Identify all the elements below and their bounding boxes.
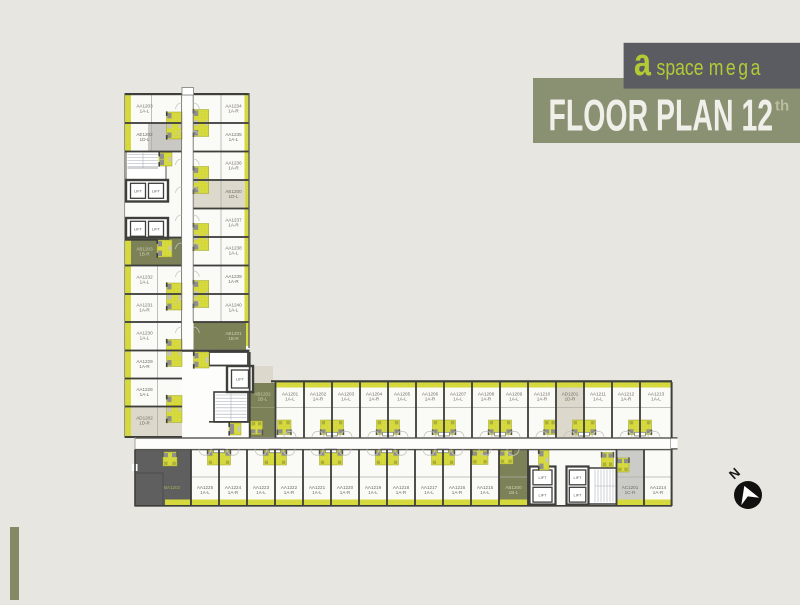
svg-text:1A-L: 1A-L xyxy=(651,397,661,402)
svg-text:LIFT: LIFT xyxy=(236,377,245,382)
svg-text:1A-L: 1A-L xyxy=(480,490,490,495)
svg-text:1A-L: 1A-L xyxy=(341,397,351,402)
svg-text:1A-L: 1A-L xyxy=(229,308,239,313)
svg-text:th: th xyxy=(775,98,789,115)
svg-text:1D-L: 1D-L xyxy=(140,137,150,142)
svg-text:1A-R: 1A-R xyxy=(228,223,239,228)
svg-text:1D-L: 1D-L xyxy=(229,194,239,199)
svg-text:1B-L: 1B-L xyxy=(258,397,268,402)
svg-text:LIFT: LIFT xyxy=(539,492,548,497)
svg-text:1A-L: 1A-L xyxy=(397,397,407,402)
svg-text:1A-R: 1A-R xyxy=(621,397,632,402)
svg-text:BA1202: BA1202 xyxy=(164,485,181,490)
svg-text:1B-L: 1B-L xyxy=(509,490,519,495)
svg-text:1A-L: 1A-L xyxy=(368,490,378,495)
svg-text:LIFT: LIFT xyxy=(574,475,583,480)
svg-text:1D-R: 1D-R xyxy=(139,421,150,426)
svg-text:1A-R: 1A-R xyxy=(481,397,492,402)
svg-text:1A-R: 1A-R xyxy=(228,279,239,284)
svg-text:1A-R: 1A-R xyxy=(425,397,436,402)
svg-text:LIFT: LIFT xyxy=(539,475,548,480)
svg-text:1B-R: 1B-R xyxy=(139,252,150,257)
svg-text:1A-L: 1A-L xyxy=(593,397,603,402)
svg-text:1A-R: 1A-R xyxy=(228,490,239,495)
svg-text:1B-R: 1B-R xyxy=(228,336,239,341)
svg-text:LIFT: LIFT xyxy=(152,226,161,231)
svg-text:1A-L: 1A-L xyxy=(200,490,210,495)
svg-text:1A-L: 1A-L xyxy=(424,490,434,495)
svg-text:1A-R: 1A-R xyxy=(228,109,239,114)
svg-text:1A-R: 1A-R xyxy=(653,490,664,495)
svg-text:1A-R: 1A-R xyxy=(139,308,150,313)
svg-text:1A-L: 1A-L xyxy=(140,109,150,114)
svg-text:1A-R: 1A-R xyxy=(396,490,407,495)
svg-text:1A-L: 1A-L xyxy=(509,397,519,402)
svg-text:1A-L: 1A-L xyxy=(453,397,463,402)
svg-text:1A-R: 1A-R xyxy=(228,166,239,171)
svg-text:LIFT: LIFT xyxy=(134,188,143,193)
svg-text:mega: mega xyxy=(709,56,763,80)
svg-text:1A-R: 1A-R xyxy=(369,397,380,402)
svg-text:1A-R: 1A-R xyxy=(537,397,548,402)
svg-text:1A-L: 1A-L xyxy=(312,490,322,495)
svg-text:1A-R: 1A-R xyxy=(452,490,463,495)
svg-text:1A-L: 1A-L xyxy=(140,336,150,341)
svg-text:1A-R: 1A-R xyxy=(139,364,150,369)
svg-text:1A-L: 1A-L xyxy=(140,392,150,397)
svg-text:a: a xyxy=(634,42,652,84)
svg-text:1A-R: 1A-R xyxy=(313,397,324,402)
svg-text:LIFT: LIFT xyxy=(152,188,161,193)
svg-text:1A-L: 1A-L xyxy=(285,397,295,402)
svg-text:1A-R: 1A-R xyxy=(340,490,351,495)
svg-text:1A-L: 1A-L xyxy=(140,280,150,285)
svg-text:1A-R: 1A-R xyxy=(284,490,295,495)
svg-text:space: space xyxy=(657,56,704,80)
svg-text:LIFT: LIFT xyxy=(134,226,143,231)
svg-text:1D-R: 1D-R xyxy=(565,397,576,402)
svg-text:1A-L: 1A-L xyxy=(229,251,239,256)
svg-text:1A-L: 1A-L xyxy=(256,490,266,495)
svg-text:1A-L: 1A-L xyxy=(229,137,239,142)
svg-text:1C-R: 1C-R xyxy=(625,490,636,495)
svg-text:LIFT: LIFT xyxy=(574,492,583,497)
svg-text:FLOOR PLAN 12: FLOOR PLAN 12 xyxy=(549,90,774,140)
